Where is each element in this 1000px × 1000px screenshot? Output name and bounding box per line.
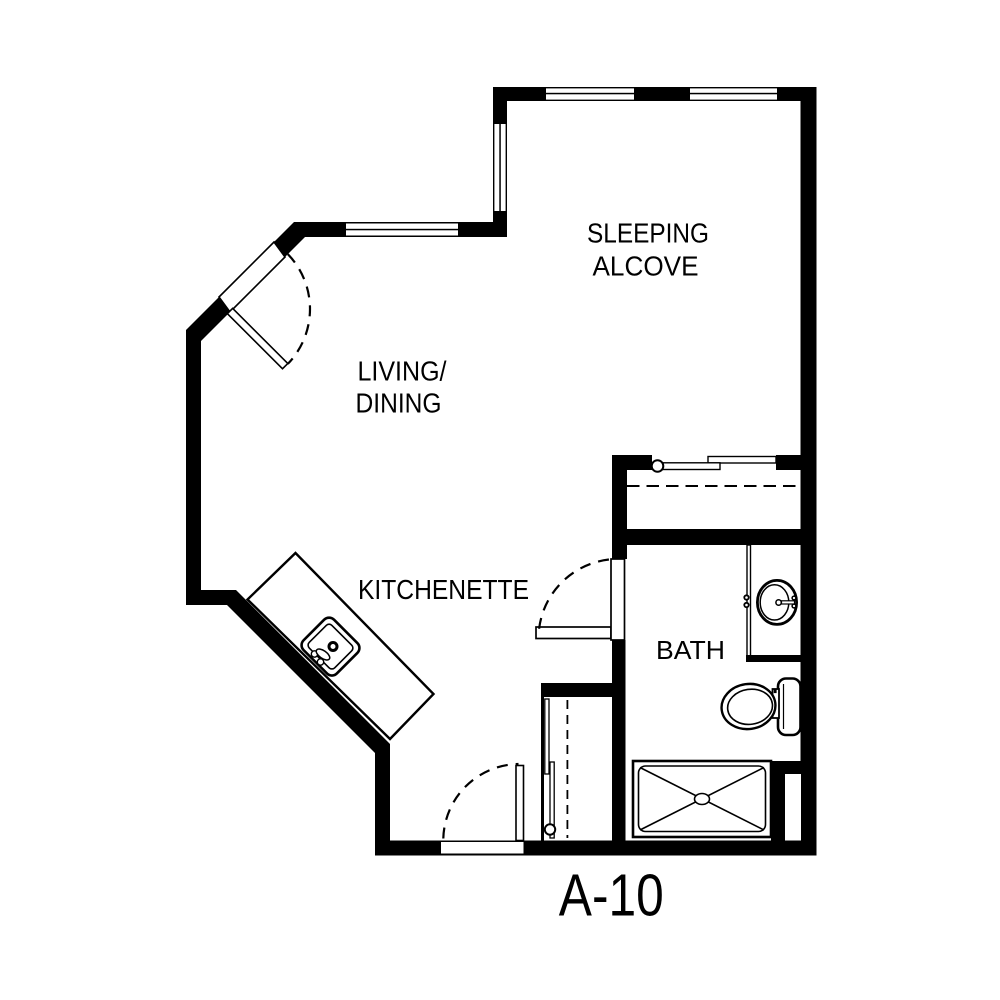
svg-text:ALCOVE: ALCOVE — [593, 251, 699, 282]
svg-text:LIVING/: LIVING/ — [358, 356, 447, 387]
svg-text:SLEEPING: SLEEPING — [587, 218, 709, 249]
svg-text:KITCHENETTE: KITCHENETTE — [358, 574, 529, 605]
svg-text:A-10: A-10 — [559, 862, 664, 929]
svg-text:BATH: BATH — [656, 635, 725, 665]
svg-text:DINING: DINING — [356, 387, 442, 418]
